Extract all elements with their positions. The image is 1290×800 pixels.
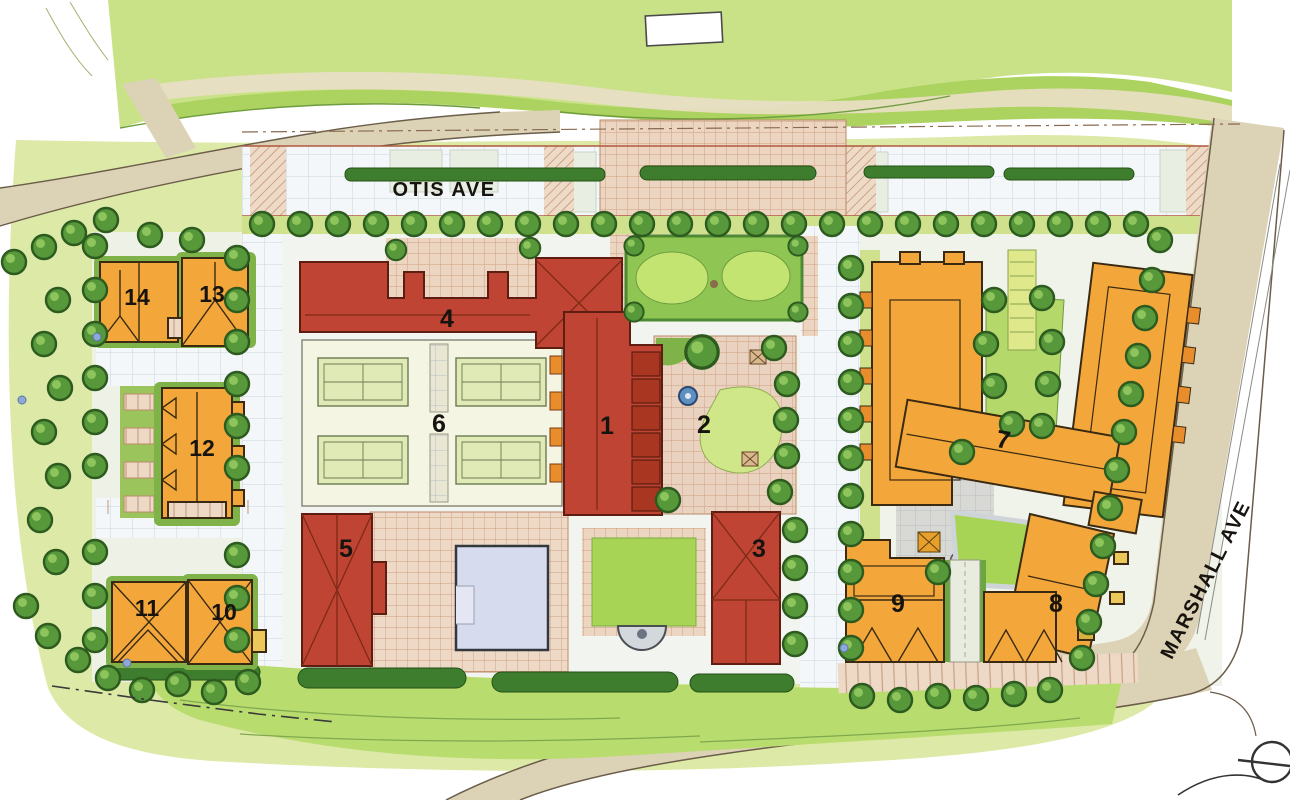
building-3: [712, 512, 780, 664]
building-3-label: 3: [752, 535, 766, 563]
building-12-label: 12: [189, 435, 215, 461]
building-2-label: 2: [697, 411, 711, 439]
building-5-label: 5: [339, 535, 353, 563]
north-hillside: [46, 0, 1232, 128]
building-4-label: 4: [440, 305, 454, 333]
building-13-label: 13: [199, 281, 225, 307]
site-plan-page: OTIS AVE MARSHALL AVE 1 2 3 4 5 6 7 8 9 …: [0, 0, 1290, 800]
building-6-label: 6: [432, 410, 446, 438]
building-11-label: 11: [135, 595, 160, 621]
building-8-label: 8: [1049, 590, 1063, 618]
building-1-label: 1: [600, 412, 614, 440]
building-9-label: 9: [891, 590, 905, 618]
building-14-label: 14: [124, 284, 150, 310]
future-pad-outline: [645, 12, 722, 46]
south-lawn-court: [582, 528, 706, 650]
cottage-driveway: [96, 344, 246, 386]
building-11: [112, 582, 186, 662]
street-label-otis: OTIS AVE: [392, 179, 495, 201]
pool-terrace: [370, 512, 568, 672]
pool-steps: [456, 586, 474, 624]
building-10-label: 10: [211, 599, 237, 625]
site-plan-canvas: OTIS AVE MARSHALL AVE 1 2 3 4 5 6 7 8 9 …: [0, 0, 1290, 800]
